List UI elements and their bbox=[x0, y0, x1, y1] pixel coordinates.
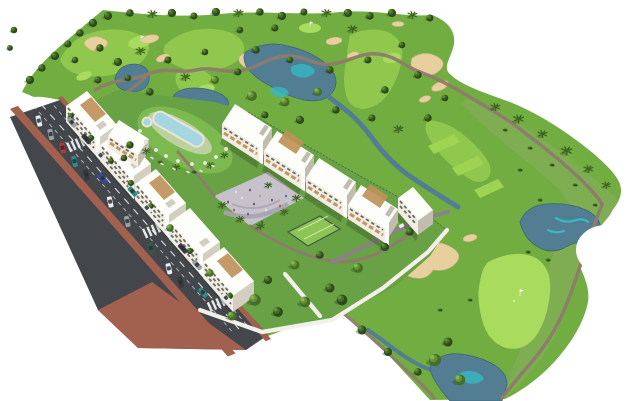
person bbox=[259, 195, 260, 198]
umbrella bbox=[164, 154, 168, 158]
umbrella bbox=[214, 155, 218, 159]
bush bbox=[528, 147, 533, 150]
aerial-render-canvas bbox=[0, 0, 630, 401]
aerial-render bbox=[0, 0, 630, 401]
person bbox=[265, 209, 266, 212]
bush bbox=[503, 129, 508, 132]
person bbox=[241, 197, 242, 200]
person bbox=[227, 201, 228, 204]
person bbox=[253, 203, 254, 206]
umbrella bbox=[176, 159, 180, 163]
person bbox=[261, 221, 262, 224]
person bbox=[243, 221, 244, 224]
person bbox=[271, 199, 272, 202]
umbrella bbox=[224, 147, 228, 151]
person bbox=[233, 209, 234, 212]
bush bbox=[468, 299, 473, 302]
person bbox=[247, 213, 248, 216]
person bbox=[285, 195, 286, 198]
kids-pool bbox=[143, 118, 152, 127]
bush bbox=[573, 184, 578, 187]
bush bbox=[192, 171, 197, 174]
golf-ball bbox=[513, 300, 515, 302]
umbrella bbox=[154, 148, 158, 152]
bush bbox=[550, 164, 555, 167]
person bbox=[279, 205, 280, 208]
umbrella bbox=[138, 129, 142, 133]
person bbox=[249, 189, 250, 192]
umbrella bbox=[190, 162, 194, 166]
bush bbox=[538, 199, 543, 202]
bush bbox=[518, 169, 523, 172]
umbrella bbox=[144, 140, 148, 144]
person bbox=[235, 191, 236, 194]
bush bbox=[438, 309, 443, 312]
bush bbox=[546, 259, 551, 262]
umbrella bbox=[203, 161, 207, 165]
bush bbox=[526, 251, 531, 254]
bush bbox=[593, 204, 598, 207]
